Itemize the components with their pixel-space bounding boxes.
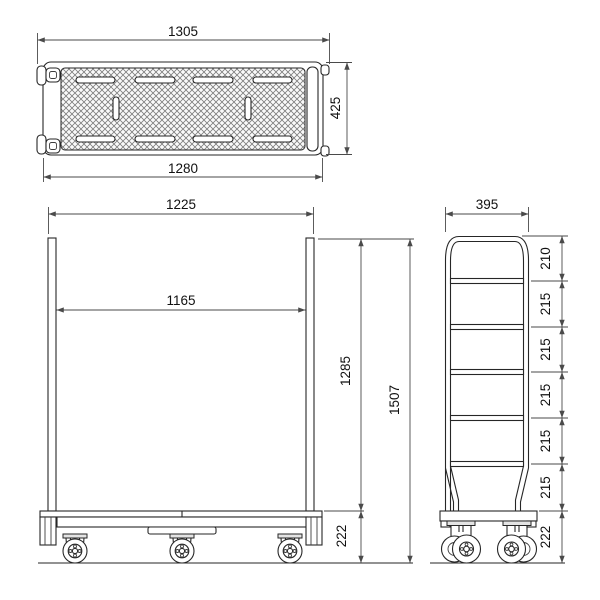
dim-front-base-height-label: 222 bbox=[334, 525, 349, 548]
technical-drawing: 1305 1280 425 bbox=[0, 0, 600, 600]
dim-side-width-label: 395 bbox=[476, 197, 499, 212]
dim-top-overall-width: 1305 bbox=[38, 24, 330, 64]
dim-side-segment-5-label: 215 bbox=[538, 430, 553, 453]
top-view: 1305 1280 425 bbox=[37, 24, 352, 182]
dim-front-outer-width: 1225 bbox=[49, 197, 314, 234]
dim-side-segment-7-label: 222 bbox=[538, 526, 553, 549]
dim-front-frame-height-label: 1285 bbox=[338, 356, 353, 386]
dim-side-segment-1-label: 210 bbox=[538, 247, 553, 270]
left-post bbox=[48, 238, 56, 511]
dim-side-segment-3-label: 215 bbox=[538, 338, 553, 361]
caster-front-right bbox=[278, 534, 302, 563]
drawing-canvas: 1305 1280 425 bbox=[0, 0, 600, 600]
dim-top-depth-label: 425 bbox=[328, 97, 343, 120]
caster-front-center bbox=[170, 534, 194, 563]
dim-top-deck-width-label: 1280 bbox=[168, 161, 198, 176]
dim-top-overall-width-label: 1305 bbox=[168, 24, 198, 39]
dim-top-depth: 425 bbox=[326, 63, 352, 155]
dim-top-deck-width: 1280 bbox=[44, 158, 323, 182]
dim-front-total-height-label: 1507 bbox=[387, 385, 402, 415]
dim-side-segment-6-label: 215 bbox=[538, 476, 553, 499]
right-post bbox=[306, 238, 314, 511]
side-view: 395 210 215 215 215 215 215 222 bbox=[430, 197, 568, 563]
dim-front-heights: 1285 222 1507 bbox=[318, 239, 414, 563]
dim-side-width: 395 bbox=[446, 197, 529, 232]
dim-side-segment-2-label: 215 bbox=[538, 293, 553, 316]
front-view: 1225 1165 1285 222 1507 bbox=[38, 197, 414, 563]
ladder-frame bbox=[446, 237, 529, 514]
caster-front-left bbox=[63, 534, 87, 563]
dim-front-outer-width-label: 1225 bbox=[166, 197, 196, 212]
dim-side-segment-4-label: 215 bbox=[538, 384, 553, 407]
frame-rungs bbox=[451, 279, 524, 467]
dim-front-inner-width-label: 1165 bbox=[166, 293, 195, 308]
dim-front-inner-width: 1165 bbox=[57, 293, 306, 310]
deck-edge-strip bbox=[307, 67, 318, 151]
